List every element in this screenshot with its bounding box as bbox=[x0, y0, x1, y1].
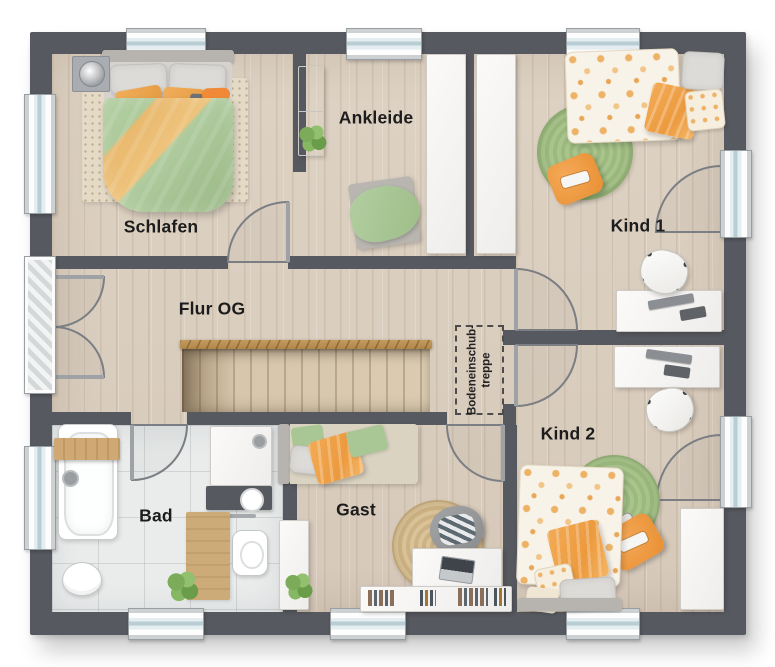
window-kind2-bottom bbox=[566, 608, 640, 640]
room-label-flur: Flur OG bbox=[179, 299, 246, 320]
window-ankleide-top bbox=[346, 28, 422, 60]
shower-head bbox=[252, 434, 267, 449]
schlafen-duvet bbox=[103, 98, 233, 212]
cabinet bbox=[680, 508, 724, 610]
room-label-kind2: Kind 2 bbox=[541, 424, 596, 445]
french-door-kind2 bbox=[720, 416, 752, 508]
window-bad-left bbox=[24, 446, 56, 550]
plant bbox=[166, 570, 200, 604]
washbasin-bowl bbox=[240, 541, 263, 570]
tub-faucet bbox=[62, 470, 79, 487]
balcony-door-flur bbox=[24, 256, 56, 394]
plant bbox=[298, 124, 328, 154]
kind2-headboard bbox=[518, 598, 622, 611]
wardrobe bbox=[476, 54, 516, 254]
room-label-kind1: Kind 1 bbox=[611, 216, 666, 237]
window-gast-bottom bbox=[330, 608, 406, 640]
attic-hatch-box: Bodeneinschub- treppe bbox=[455, 325, 504, 415]
room-label-bad: Bad bbox=[139, 506, 173, 527]
french-door-kind1 bbox=[720, 150, 752, 238]
attic-hatch-line2: treppe bbox=[481, 352, 493, 387]
floor-plan-canvas: Bodeneinschub- treppe Schlafen Ankleide … bbox=[0, 0, 775, 667]
room-label-ankleide: Ankleide bbox=[339, 108, 414, 129]
attic-hatch-line1: Bodeneinschub- bbox=[466, 325, 478, 415]
toy bbox=[560, 170, 589, 188]
attic-hatch-label: Bodeneinschub- treppe bbox=[465, 324, 494, 416]
window-bad-bottom bbox=[128, 608, 204, 640]
toilet bbox=[62, 562, 102, 596]
chair-cushion bbox=[436, 512, 477, 548]
books bbox=[494, 588, 506, 606]
pillow bbox=[681, 51, 725, 91]
toy bbox=[618, 531, 649, 553]
room-label-gast: Gast bbox=[336, 500, 376, 521]
bath-caddy bbox=[54, 438, 120, 460]
books bbox=[420, 590, 436, 606]
books bbox=[458, 588, 488, 606]
gast-headboard bbox=[278, 424, 290, 484]
wardrobe bbox=[426, 54, 466, 254]
pillow bbox=[684, 88, 726, 132]
plant bbox=[284, 572, 314, 602]
vanity-basin bbox=[240, 488, 264, 512]
lamp bbox=[79, 61, 105, 87]
washbasin bbox=[232, 530, 268, 576]
room-label-schlafen: Schlafen bbox=[124, 217, 199, 238]
books bbox=[368, 590, 394, 606]
laptop bbox=[438, 556, 475, 584]
window-schlafen-left bbox=[24, 94, 56, 214]
